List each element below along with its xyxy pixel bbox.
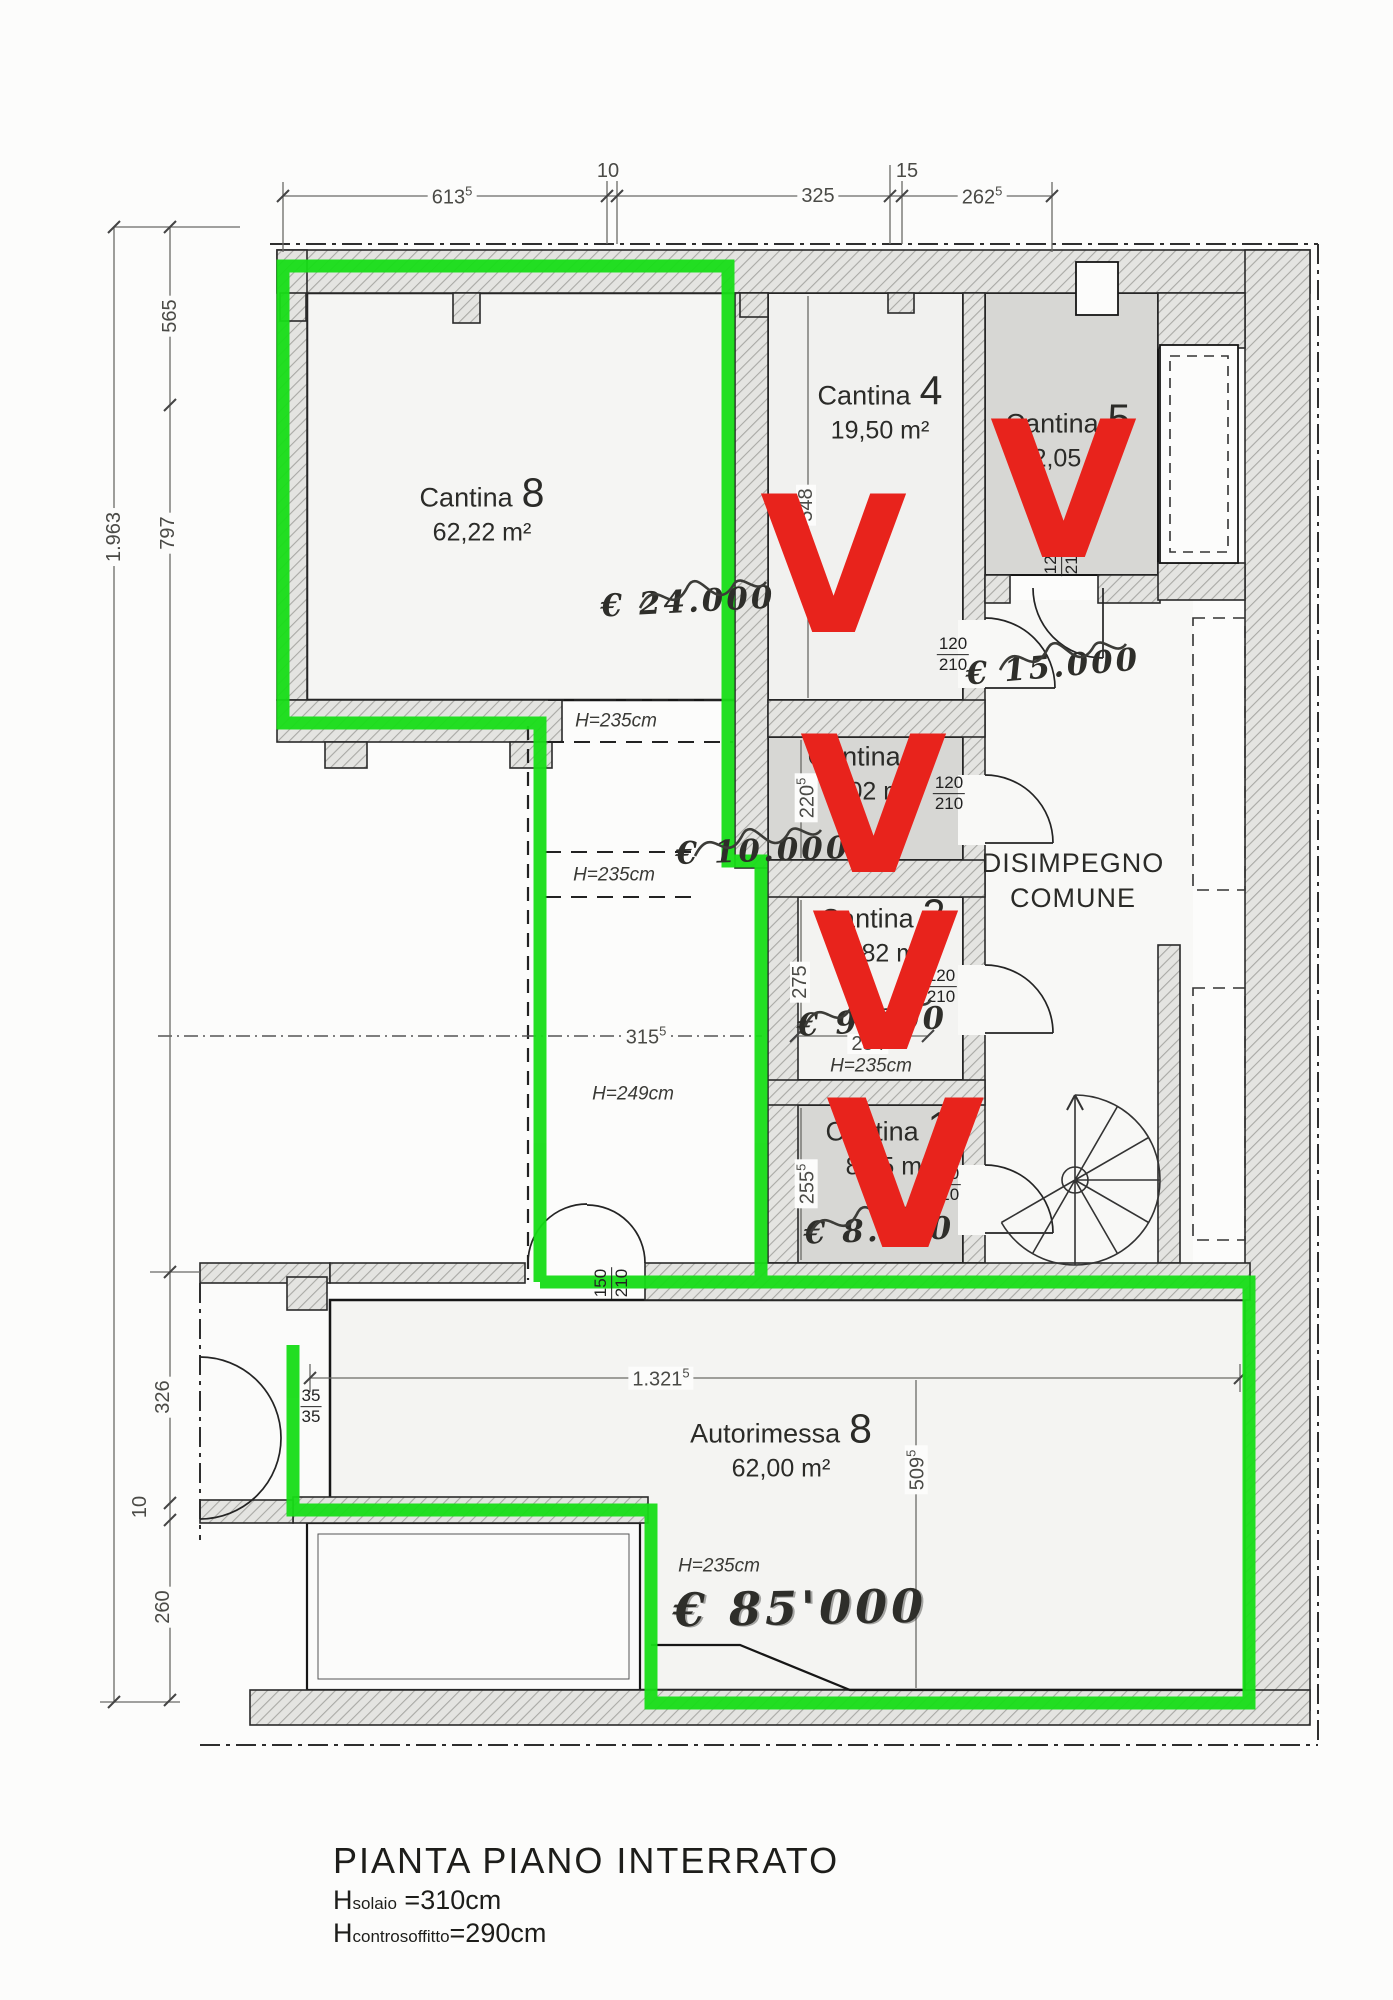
dim-top-15: 15 [892, 161, 922, 181]
room-label-corridor: DISIMPEGNOCOMUNE [982, 846, 1165, 916]
plan-title: PIANTA PIANO INTERRATO [333, 1843, 839, 1879]
plan-height-solaio: Hsolaio =310cm [333, 1887, 501, 1914]
door-label-c4: 120210 [939, 635, 967, 675]
dim-left-260: 260 [153, 1586, 173, 1627]
dim-top-262: 2625 [958, 185, 1007, 208]
dim-left-797: 797 [158, 512, 178, 553]
dim-left-total: 1.963 [104, 508, 124, 566]
dim-left-565: 565 [160, 295, 180, 336]
price-autorimessa: € 85'000 [672, 1579, 927, 1637]
dim-315: 3155 [622, 1025, 671, 1048]
height-garage: H=235cm [678, 1557, 760, 1576]
wall-right-of-c5-top [1158, 293, 1245, 348]
height-lower: H=249cm [592, 1085, 674, 1104]
dim-top-10: 10 [593, 161, 623, 181]
red-check-cantina1: V [826, 1100, 985, 1256]
wall-garage-top-a [330, 1263, 525, 1283]
room-label-cantina4: Cantina4 19,50 m² [818, 375, 943, 446]
duct-dashed-upper [1193, 618, 1245, 890]
red-check-cantina2: V [812, 912, 959, 1056]
wall-stair [1158, 945, 1180, 1263]
dim-255: 2555 [795, 1160, 818, 1209]
floor-plan-canvas: 6135 10 325 15 2625 1.963 565 797 326 10… [0, 0, 1393, 2000]
wall-garage-step [287, 1277, 327, 1310]
room-label-autorimessa: Autorimessa8 62,00 m² [690, 1413, 872, 1484]
interior-dashed [158, 700, 762, 1280]
red-check-cantina3: V [800, 735, 947, 879]
height-upper: H=235cm [575, 712, 657, 731]
dim-top-325: 325 [797, 186, 838, 206]
plan-drawing [0, 0, 1393, 2000]
dim-left-10: 10 [130, 1492, 150, 1522]
door-label-garage: 150210 [592, 1269, 632, 1297]
room-label-cantina8: Cantina8 62,22 m² [420, 477, 545, 548]
wall-left-cantina-column [768, 868, 798, 1263]
pillar-c8-bottom-1 [325, 742, 367, 768]
wall-right-of-c5-bottom [1158, 563, 1245, 600]
dim-275: 275 [790, 961, 810, 1002]
door-label-entry: 3535 [302, 1387, 321, 1427]
red-check-cantina5: V [990, 420, 1137, 564]
red-check-cantina4: V [760, 495, 907, 639]
shaft-box [1160, 345, 1238, 563]
dim-1321: 1.3215 [628, 1367, 693, 1390]
dim-509: 5095 [905, 1446, 928, 1495]
duct-dashed-lower [1193, 988, 1245, 1240]
wall-niche [1076, 262, 1118, 315]
pillar-top-2 [453, 293, 480, 323]
side-bay-floor [307, 1523, 640, 1690]
height-middle: H=235cm [573, 866, 655, 885]
dim-top-613: 6135 [428, 185, 477, 208]
dim-left-326: 326 [153, 1376, 173, 1417]
pillar-top-4 [888, 293, 914, 313]
pillar-top-3 [740, 293, 768, 317]
plan-height-controsoffitto: Hcontrosoffitto=290cm [333, 1920, 546, 1947]
